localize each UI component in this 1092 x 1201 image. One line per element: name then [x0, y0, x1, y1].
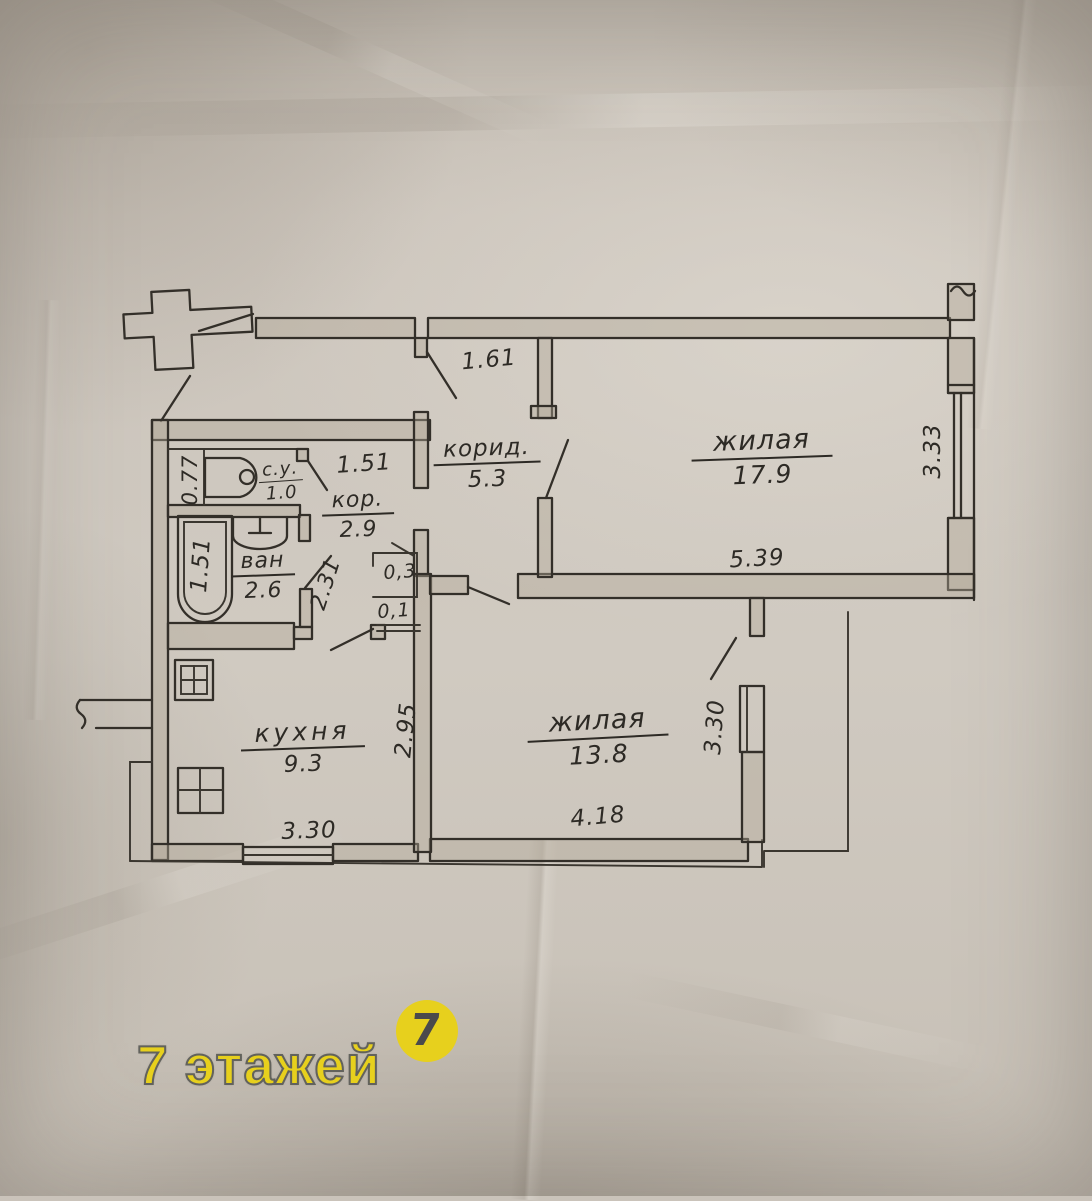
- dim-kitchen-width: 3.30: [281, 817, 337, 845]
- kitchen-sink-fixture: [175, 660, 213, 700]
- dim-niche-small: 0,1: [377, 599, 412, 623]
- door-entrance: [415, 338, 456, 398]
- wall-break-mark: [77, 700, 86, 728]
- door-living-small: [468, 587, 509, 604]
- dim-entry-opening: 1.61: [460, 345, 517, 376]
- room-label-corridor-main: корид. 5.3: [433, 435, 542, 494]
- watermark-brand-text: 7 этажей: [137, 1033, 381, 1097]
- watermark-logo-7-icon: 7: [394, 998, 460, 1064]
- toilet-fixture: [205, 458, 256, 497]
- room-label-toilet: с.у. 1.0: [258, 459, 305, 505]
- floor-plan-drawing: [0, 0, 1092, 1196]
- window-balcony-block: [740, 686, 764, 752]
- door-toilet: [308, 461, 327, 490]
- scanned-floor-plan-photo: { "paper": { "background_color": "#cac3b…: [0, 0, 1092, 1196]
- washbasin-fixture: [233, 517, 287, 549]
- watermark-logo-digit: 7: [408, 1005, 444, 1056]
- dim-niche-large: 0,3: [383, 560, 418, 584]
- room-label-living-large: жилая 17.9: [691, 425, 834, 491]
- stove-fixture: [178, 768, 223, 813]
- dim-toilet-width: 0.77: [178, 455, 202, 506]
- dim-living-large-width: 5.39: [729, 545, 786, 574]
- dim-hall-width: 1.51: [336, 449, 393, 479]
- balcony-outline: [764, 612, 848, 867]
- room-label-kitchen: кухня 9.3: [240, 717, 366, 779]
- door-balcony: [711, 638, 736, 679]
- dim-bath-length: 1.51: [186, 537, 216, 594]
- room-label-living-small: жилая 13.8: [526, 704, 670, 773]
- dim-living-small-depth: 3.30: [700, 699, 730, 756]
- dim-living-small-width: 4.18: [569, 802, 626, 833]
- door-living-large: [546, 440, 568, 498]
- door-kitchen: [331, 629, 373, 650]
- room-label-bath: ван 2.6: [230, 548, 296, 603]
- axis-cross-mark: [122, 287, 254, 421]
- room-label-corridor-small: кор. 2.9: [321, 487, 395, 543]
- dim-living-large-depth: 3.33: [920, 423, 946, 478]
